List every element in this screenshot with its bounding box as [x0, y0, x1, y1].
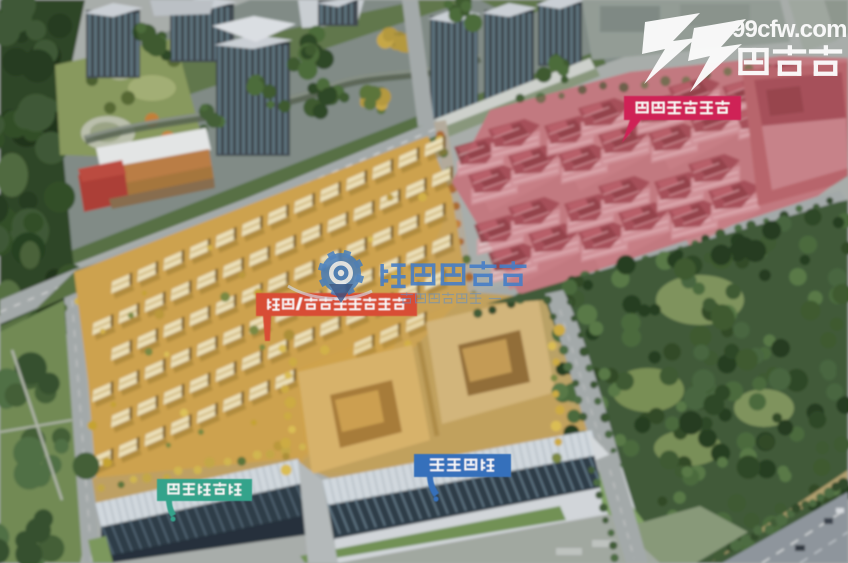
svg-text:99cfw.com: 99cfw.com: [732, 16, 847, 43]
